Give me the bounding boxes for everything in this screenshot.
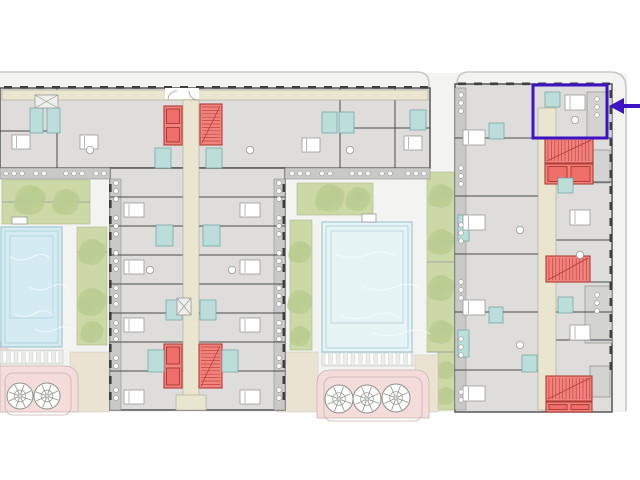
window-mark: [109, 264, 112, 272]
window-mark: [148, 86, 156, 89]
balcony-chair-dot: [42, 171, 47, 176]
balcony-protrusion: [590, 366, 610, 397]
palm-frond: [365, 397, 369, 401]
pergola-slat: [33, 351, 37, 363]
bed-symbol: [240, 390, 260, 404]
window-mark: [610, 314, 613, 322]
balcony-chair-dot: [114, 388, 119, 393]
bathroom: [545, 92, 560, 107]
floor-plan-canvas: [0, 0, 640, 480]
balcony-chair-dot: [114, 337, 119, 342]
balcony-chair-dot: [277, 267, 282, 272]
table-symbol: [146, 266, 153, 273]
balcony-chair-dot: [277, 396, 282, 401]
tree-canopy: [86, 289, 100, 303]
window-mark: [610, 90, 613, 98]
window-mark: [283, 328, 286, 336]
tree-canopy: [324, 185, 338, 199]
elevator-car: [571, 405, 589, 410]
tree-canopy: [295, 291, 307, 303]
balcony-chair-dot: [114, 232, 119, 237]
pergola-slat: [378, 353, 382, 365]
bathroom: [522, 355, 537, 372]
balcony-chair-dot: [459, 390, 464, 395]
bathroom: [156, 225, 173, 246]
balcony-chair-dot: [380, 171, 385, 176]
window-mark: [292, 86, 300, 89]
palm-frond: [337, 397, 341, 401]
palm-tree-icon: [353, 385, 381, 413]
elevator-car: [167, 109, 180, 124]
window-mark: [4, 86, 12, 89]
window-mark: [610, 218, 613, 226]
window-mark: [109, 328, 112, 336]
table-symbol: [516, 226, 523, 233]
window-mark: [212, 86, 220, 89]
balcony-chair-dot: [459, 223, 464, 228]
pergola-slat: [393, 353, 397, 365]
balcony-chair-dot: [350, 171, 355, 176]
pergola-slat: [41, 351, 45, 363]
balcony-chair-dot: [595, 293, 600, 298]
entrance-gap: [165, 88, 199, 99]
window-mark: [109, 360, 112, 368]
balcony-chair-dot: [64, 171, 69, 176]
pergola-deck: [0, 350, 63, 364]
window-mark: [109, 280, 112, 288]
bathroom: [489, 307, 503, 323]
pool-ladder: [362, 214, 376, 222]
balcony-chair-dot: [459, 296, 464, 301]
bathroom: [155, 148, 171, 168]
balcony-chair-dot: [12, 171, 17, 176]
window-mark: [283, 344, 286, 352]
corridor: [183, 100, 199, 408]
bathroom: [558, 178, 573, 193]
balcony-chair-dot: [595, 309, 600, 314]
window-mark: [283, 280, 286, 288]
balcony-chair-dot: [277, 302, 282, 307]
balcony-chair-dot: [459, 101, 464, 106]
tree-canopy: [442, 387, 451, 396]
balcony-chair-dot: [459, 353, 464, 358]
tree-canopy: [296, 242, 307, 253]
pergola-slat: [355, 353, 359, 365]
pergola-slat: [348, 353, 352, 365]
window-mark: [324, 86, 332, 89]
balcony-chair-dot: [114, 259, 119, 264]
tree-canopy: [296, 327, 306, 337]
elevator-car: [167, 128, 180, 143]
window-mark: [610, 250, 613, 258]
window-mark: [283, 376, 286, 384]
tree-canopy: [61, 190, 74, 203]
tree-canopy: [442, 361, 451, 370]
corridor: [2, 90, 428, 100]
window-mark: [610, 266, 613, 274]
balcony-chair-dot: [114, 189, 119, 194]
balcony-chair-dot: [277, 232, 282, 237]
window-mark: [109, 216, 112, 224]
pergola-slat: [340, 353, 344, 365]
bed-symbol: [240, 318, 260, 332]
balcony-chair-dot: [320, 171, 325, 176]
bed-symbol: [565, 95, 585, 110]
window-mark: [610, 346, 613, 354]
balcony-chair-dot: [595, 113, 600, 118]
balcony-chair-dot: [277, 329, 282, 334]
pergola-slat: [18, 351, 22, 363]
bed-symbol: [463, 300, 485, 315]
balcony-chair-dot: [422, 171, 427, 176]
balcony-chair-dot: [595, 97, 600, 102]
balcony-chair-dot: [406, 171, 411, 176]
window-mark: [506, 83, 514, 86]
balcony-chair-dot: [277, 294, 282, 299]
balcony-chair-dot: [277, 251, 282, 256]
balcony-chair-dot: [306, 171, 311, 176]
bed-symbol: [302, 138, 320, 152]
balcony-chair-dot: [277, 216, 282, 221]
balcony-chair-dot: [114, 181, 119, 186]
balcony-chair-dot: [459, 280, 464, 285]
balcony-chair-dot: [114, 294, 119, 299]
balcony-chair-dot: [4, 171, 9, 176]
palm-tree-icon: [7, 383, 33, 409]
bathroom: [203, 225, 220, 246]
window-mark: [109, 312, 112, 320]
window-mark: [610, 362, 613, 370]
elevator-car: [571, 167, 590, 182]
window-mark: [388, 86, 396, 89]
pergola-slat: [333, 353, 337, 365]
balcony-chair-dot: [80, 171, 85, 176]
window-mark: [109, 248, 112, 256]
elevator-car: [549, 405, 567, 410]
balcony-chair-dot: [114, 396, 119, 401]
bathroom: [322, 112, 337, 133]
palm-frond: [18, 394, 22, 398]
bed-symbol: [124, 390, 144, 404]
bed-symbol: [12, 135, 30, 149]
window-mark: [308, 86, 316, 89]
window-mark: [276, 86, 284, 89]
window-mark: [283, 264, 286, 272]
palm-frond: [45, 394, 49, 398]
window-mark: [610, 330, 613, 338]
tree-canopy: [24, 186, 39, 201]
bed-symbol: [570, 210, 590, 225]
pergola-slat: [363, 353, 367, 365]
bed-symbol: [463, 215, 485, 230]
balcony-chair-dot: [388, 171, 393, 176]
palm-tree-icon: [325, 385, 353, 413]
window-mark: [84, 86, 92, 89]
pergola-slat: [400, 353, 404, 365]
balcony-chair-dot: [114, 197, 119, 202]
balcony-chair-dot: [277, 197, 282, 202]
tree-canopy: [88, 322, 99, 333]
elevator-car: [167, 347, 180, 364]
balcony-chair-dot: [595, 105, 600, 110]
balcony-chair-dot: [114, 251, 119, 256]
window-mark: [283, 392, 286, 400]
balcony-chair-dot: [114, 286, 119, 291]
window-mark: [109, 184, 112, 192]
bed-symbol: [240, 203, 260, 217]
balcony-chair-dot: [290, 171, 295, 176]
table-symbol: [246, 146, 253, 153]
table-symbol: [346, 146, 353, 153]
balcony-chair-dot: [459, 93, 464, 98]
bed-symbol: [124, 203, 144, 217]
window-mark: [610, 186, 613, 194]
window-mark: [372, 86, 380, 89]
window-mark: [610, 298, 613, 306]
balcony-chair-dot: [277, 259, 282, 264]
balcony-chair-dot: [358, 171, 363, 176]
window-mark: [340, 86, 348, 89]
balcony-chair-dot: [277, 337, 282, 342]
balcony-chair-dot: [459, 166, 464, 171]
window-mark: [100, 86, 108, 89]
window-mark: [610, 282, 613, 290]
palm-tree-icon: [34, 383, 60, 409]
balcony-chair-dot: [94, 171, 99, 176]
bathroom: [558, 297, 573, 313]
window-mark: [283, 248, 286, 256]
window-mark: [522, 83, 530, 86]
balcony-chair-dot: [459, 239, 464, 244]
tree-canopy: [436, 321, 448, 333]
pergola-slat: [11, 351, 15, 363]
pergola-slat: [408, 353, 412, 365]
pergola-slat: [56, 351, 60, 363]
tree-canopy: [353, 188, 365, 200]
table-symbol: [576, 251, 583, 258]
balcony-chair-dot: [459, 182, 464, 187]
window-mark: [36, 86, 44, 89]
table-symbol: [228, 266, 235, 273]
bathroom: [148, 350, 164, 372]
balcony-chair-dot: [459, 337, 464, 342]
balcony-chair-dot: [34, 171, 39, 176]
bed-symbol: [124, 260, 144, 274]
window-mark: [116, 86, 124, 89]
balcony-chair-dot: [277, 286, 282, 291]
palm-frond: [394, 396, 398, 400]
balcony-chair-dot: [114, 321, 119, 326]
balcony-chair-dot: [114, 329, 119, 334]
pergola-slat: [385, 353, 389, 365]
balcony-chair-dot: [459, 288, 464, 293]
window-mark: [283, 200, 286, 208]
bathroom: [222, 350, 238, 372]
bed-symbol: [570, 325, 590, 340]
window-mark: [68, 86, 76, 89]
window-mark: [356, 86, 364, 89]
balcony-chair-dot: [328, 171, 333, 176]
balcony-chair-dot: [414, 171, 419, 176]
tree-canopy: [436, 185, 448, 197]
window-mark: [244, 86, 252, 89]
window-mark: [610, 234, 613, 242]
balcony-chair-dot: [459, 345, 464, 350]
window-mark: [109, 376, 112, 384]
window-mark: [610, 138, 613, 146]
balcony-chair-dot: [114, 364, 119, 369]
window-mark: [458, 83, 466, 86]
bathroom: [200, 300, 216, 320]
bathroom: [489, 123, 504, 139]
corridor: [176, 395, 206, 410]
tree-canopy: [436, 276, 449, 289]
bathroom: [410, 110, 426, 130]
balcony-chair-dot: [277, 364, 282, 369]
window-mark: [283, 232, 286, 240]
pergola-slat: [48, 351, 52, 363]
balcony-chair-dot: [72, 171, 77, 176]
window-mark: [132, 86, 140, 89]
balcony-chair-dot: [114, 302, 119, 307]
balcony-chair-dot: [114, 224, 119, 229]
balcony-chair-dot: [277, 181, 282, 186]
window-mark: [283, 296, 286, 304]
window-mark: [610, 202, 613, 210]
window-mark: [260, 86, 268, 89]
window-mark: [228, 86, 236, 89]
balcony-chair-dot: [459, 174, 464, 179]
balcony-chair-dot: [277, 356, 282, 361]
balcony-chair-dot: [459, 231, 464, 236]
bathroom: [206, 148, 222, 168]
window-mark: [283, 312, 286, 320]
window-mark: [610, 122, 613, 130]
balcony-chair-dot: [459, 398, 464, 403]
balcony-chair-dot: [102, 171, 107, 176]
window-mark: [404, 86, 412, 89]
bathroom: [339, 112, 354, 133]
balcony-chair-dot: [114, 267, 119, 272]
balcony-chair-dot: [277, 321, 282, 326]
bed-symbol: [240, 260, 260, 274]
balcony-chair-dot: [459, 109, 464, 114]
elevator-car: [167, 368, 180, 385]
window-mark: [283, 184, 286, 192]
swimming-pool: [322, 222, 412, 352]
window-mark: [610, 154, 613, 162]
table-symbol: [571, 116, 578, 123]
pergola-slat: [26, 351, 30, 363]
balcony-chair-dot: [595, 301, 600, 306]
window-mark: [420, 86, 428, 89]
bathroom: [30, 108, 43, 133]
balcony-chair-dot: [298, 171, 303, 176]
balcony-chair-dot: [277, 224, 282, 229]
window-mark: [109, 296, 112, 304]
balcony-chair-dot: [20, 171, 25, 176]
bed-symbol: [124, 318, 144, 332]
balcony-chair-dot: [366, 171, 371, 176]
window-mark: [109, 392, 112, 400]
pool-ladder: [12, 217, 27, 224]
tree-canopy: [436, 230, 449, 243]
balcony-chair-dot: [114, 216, 119, 221]
window-mark: [283, 216, 286, 224]
bed-symbol: [463, 130, 485, 145]
window-mark: [109, 344, 112, 352]
palm-tree-icon: [382, 384, 410, 412]
window-mark: [490, 83, 498, 86]
window-mark: [283, 360, 286, 368]
bed-symbol: [404, 136, 422, 150]
window-mark: [109, 200, 112, 208]
window-mark: [52, 86, 60, 89]
tree-canopy: [87, 240, 100, 253]
site-plan-drawing: [0, 0, 640, 480]
pergola-slat: [325, 353, 329, 365]
window-mark: [20, 86, 28, 89]
balcony-chair-dot: [114, 356, 119, 361]
balcony-chair-dot: [277, 189, 282, 194]
bathroom: [47, 108, 60, 133]
window-mark: [610, 170, 613, 178]
table-symbol: [516, 341, 523, 348]
pergola-slat: [3, 351, 7, 363]
window-mark: [109, 232, 112, 240]
table-symbol: [86, 146, 93, 153]
window-mark: [474, 83, 482, 86]
pergola-slat: [370, 353, 374, 365]
bed-symbol: [463, 386, 485, 401]
balcony-chair-dot: [277, 388, 282, 393]
